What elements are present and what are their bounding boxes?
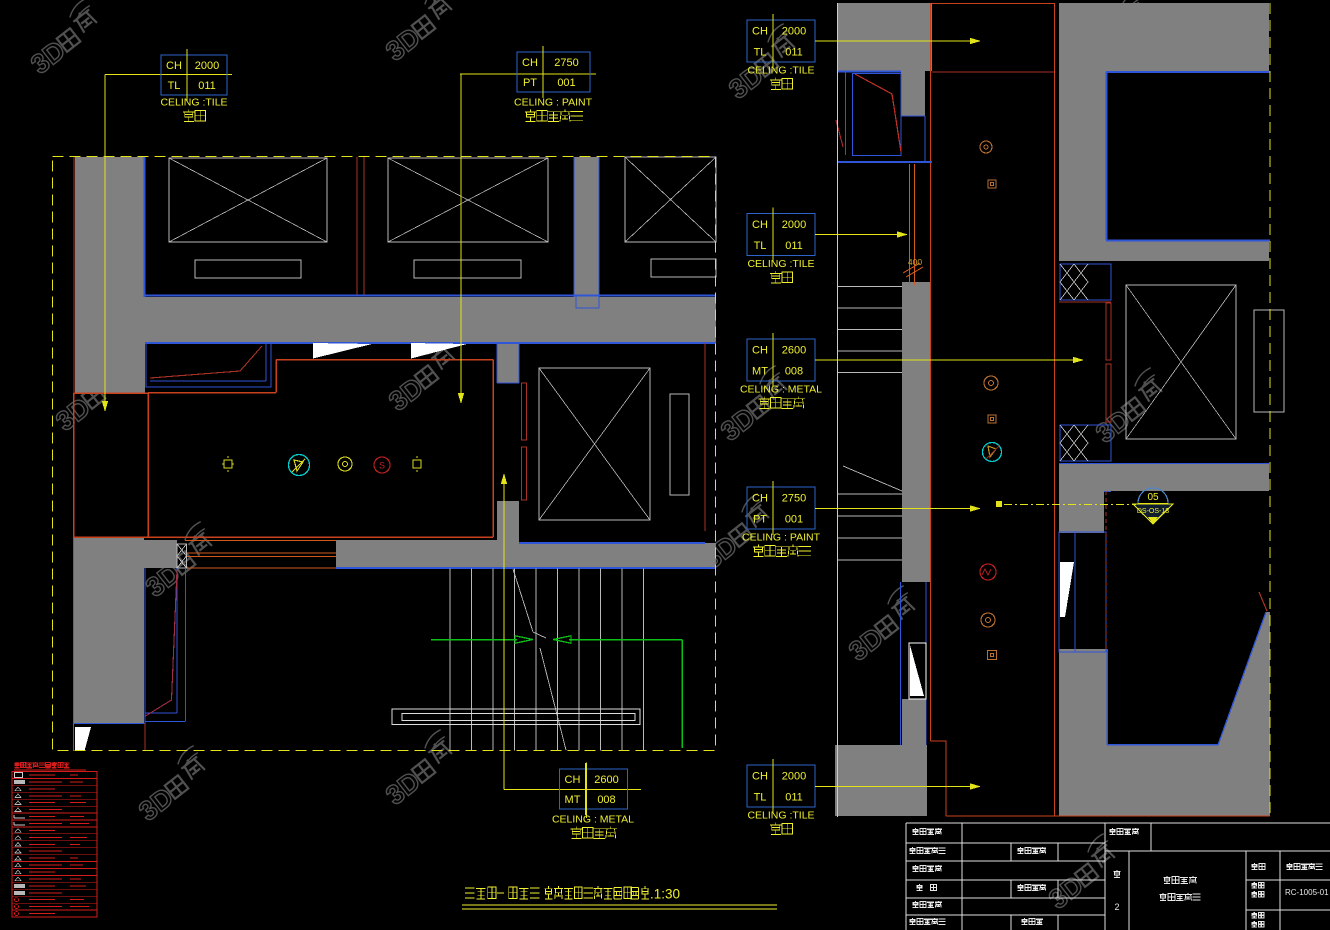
svg-text:CH: CH [522,57,538,69]
svg-text:2600: 2600 [594,774,618,786]
svg-text:TL: TL [754,792,767,804]
svg-text:CH: CH [752,219,768,231]
svg-text:001: 001 [785,514,803,526]
svg-text:S: S [379,461,385,471]
svg-text:CELING : PAINT: CELING : PAINT [742,532,821,544]
svg-text:TL: TL [168,80,181,92]
svg-text:CH: CH [752,26,768,38]
svg-text:MT: MT [565,794,581,806]
svg-text:CH: CH [752,493,768,505]
svg-text:CELING : METAL: CELING : METAL [552,814,634,826]
svg-text:2000: 2000 [782,26,806,38]
svg-text:2000: 2000 [195,60,219,72]
svg-text:CELING :TILE: CELING :TILE [747,65,814,77]
svg-text:DS-OS-13: DS-OS-13 [1137,508,1169,515]
svg-text:2000: 2000 [782,771,806,783]
svg-text:CELING : PAINT: CELING : PAINT [514,97,593,109]
svg-text:011: 011 [198,80,216,92]
svg-text:TL: TL [754,47,767,59]
svg-text:CELING :TILE: CELING :TILE [747,258,814,270]
svg-text:05: 05 [1147,492,1159,503]
svg-text:2600: 2600 [782,345,806,357]
svg-text:CELING : METAL: CELING : METAL [740,384,822,396]
svg-text:MT: MT [752,366,768,378]
svg-text:PT: PT [523,77,537,89]
svg-text:2750: 2750 [782,493,806,505]
svg-text:400: 400 [908,257,922,267]
svg-text:CH: CH [166,60,182,72]
svg-text:CH: CH [752,771,768,783]
svg-text:CH: CH [565,774,581,786]
svg-text:2750: 2750 [554,57,578,69]
svg-text:CELING :TILE: CELING :TILE [747,810,814,822]
svg-text:.1:30: .1:30 [650,887,680,902]
svg-text:001: 001 [557,77,575,89]
svg-text:008: 008 [785,366,803,378]
svg-text:008: 008 [597,794,615,806]
svg-text:CELING :TILE: CELING :TILE [160,97,227,109]
svg-text:RC-1005-01: RC-1005-01 [1285,888,1329,897]
svg-text:TL: TL [754,240,767,252]
svg-text:2: 2 [1114,902,1119,912]
svg-text:2000: 2000 [782,219,806,231]
svg-text:PT: PT [753,514,767,526]
svg-text:CH: CH [752,345,768,357]
svg-text:011: 011 [785,47,803,59]
svg-text:011: 011 [785,792,803,804]
svg-text:011: 011 [785,240,803,252]
